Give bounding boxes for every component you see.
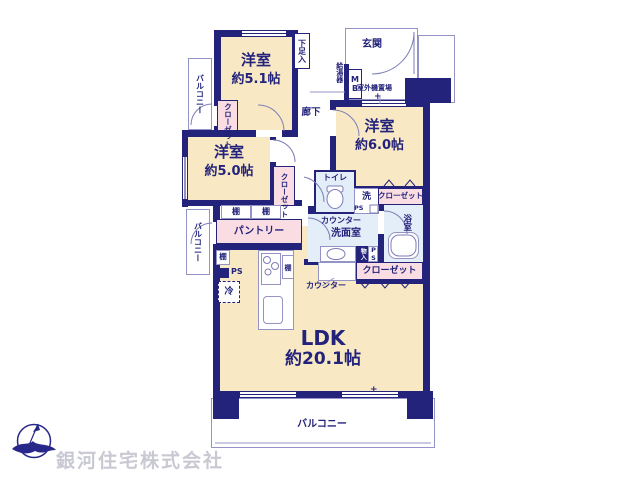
- kitchen-sink: [263, 296, 283, 324]
- refrigerator-label: 冷: [224, 287, 233, 297]
- balcony-label-bottom: バルコニー: [270, 418, 374, 432]
- entrance-label: 玄関: [352, 38, 392, 52]
- shelf-label: 棚: [219, 253, 227, 262]
- bedroom3-name: 洋室: [336, 118, 423, 136]
- pantry: パントリー: [216, 219, 302, 244]
- toilet-label: トイレ: [314, 172, 356, 183]
- bedroom2-name: 洋室: [186, 144, 272, 162]
- counter-ldk-box: [318, 262, 356, 281]
- bedroom2-size: 約5.0帖: [186, 164, 272, 180]
- closet-label: クローゼット: [362, 266, 416, 276]
- counter-label-washroom: カウンター: [316, 216, 366, 226]
- door-arc: [273, 140, 295, 162]
- bedroom3-size: 約6.0帖: [336, 138, 423, 154]
- bedroom1-name: 洋室: [212, 52, 300, 70]
- balcony-corner-block: [213, 391, 239, 419]
- logo-circle: [18, 425, 51, 458]
- hallway-label: 廊下: [294, 107, 328, 120]
- balcony-label-mid-left: バルコニー: [186, 209, 210, 275]
- pipe-space-block: [217, 268, 229, 278]
- vanity-counter: [320, 246, 356, 262]
- pipe-space-label-ldk: PS: [231, 267, 249, 278]
- refrigerator-space: 冷: [218, 281, 240, 303]
- counter-label-ldk: カウンター: [306, 281, 352, 291]
- shelf-label: 棚: [262, 207, 270, 216]
- logo-bird: [12, 441, 56, 453]
- storage-box: 物入: [356, 246, 368, 262]
- logo-needle: [27, 424, 38, 450]
- pipe-space-box: PS: [368, 246, 378, 262]
- washroom-label: 洗面室: [318, 227, 374, 240]
- shelf-label: 棚: [284, 264, 292, 271]
- bathtub: [388, 232, 419, 259]
- washer-label: 洗: [354, 191, 379, 203]
- shelf-box: 棚: [216, 250, 230, 265]
- ldk-name: LDK: [260, 326, 386, 350]
- balcony-label-top-left: バルコニー: [188, 58, 212, 130]
- shelf-box: 棚: [221, 205, 251, 219]
- closet-bedroom3: クローゼット: [378, 188, 423, 205]
- water-heater-label: 給湯器: [333, 55, 345, 89]
- closet-label: クローゼット: [280, 173, 288, 199]
- shelf-label: 棚: [232, 207, 240, 216]
- outdoor-unit-block: [405, 78, 451, 103]
- survey-mark: +: [370, 385, 382, 397]
- logo-needle-head: [33, 424, 40, 432]
- bedroom1-size: 約5.1帖: [212, 72, 300, 88]
- closet-bedroom1: クローゼット: [217, 100, 238, 131]
- ldk-size: 約20.1帖: [260, 350, 386, 370]
- balcony-corner-block: [407, 391, 433, 419]
- company-logo: [12, 424, 56, 458]
- kitchen-shelf: 棚: [282, 255, 294, 279]
- closet-label: クローゼット: [224, 103, 232, 129]
- bathroom-label: 浴室: [399, 208, 413, 236]
- pipe-space-label-washer: PS: [354, 205, 370, 214]
- pantry-label: パントリー: [234, 226, 285, 238]
- shelf-box: 棚: [251, 205, 281, 219]
- closet-ldk: クローゼット: [356, 262, 423, 280]
- survey-mark: +: [374, 92, 386, 104]
- wall: [423, 100, 430, 391]
- window: [240, 391, 296, 398]
- closet-bedroom2: クローゼット: [273, 166, 295, 206]
- storage-label: 物入: [359, 248, 366, 260]
- door-opening: [256, 130, 282, 137]
- window: [242, 30, 286, 37]
- floor-plan: クローゼット クローゼット 棚 棚 パントリー 下足入 MB クローゼット クロ…: [0, 0, 640, 480]
- company-watermark: 銀河住宅株式会社: [56, 446, 276, 470]
- stove: [261, 253, 281, 285]
- closet-label: クローゼット: [378, 192, 423, 201]
- pipe-space-label: PS: [370, 246, 377, 262]
